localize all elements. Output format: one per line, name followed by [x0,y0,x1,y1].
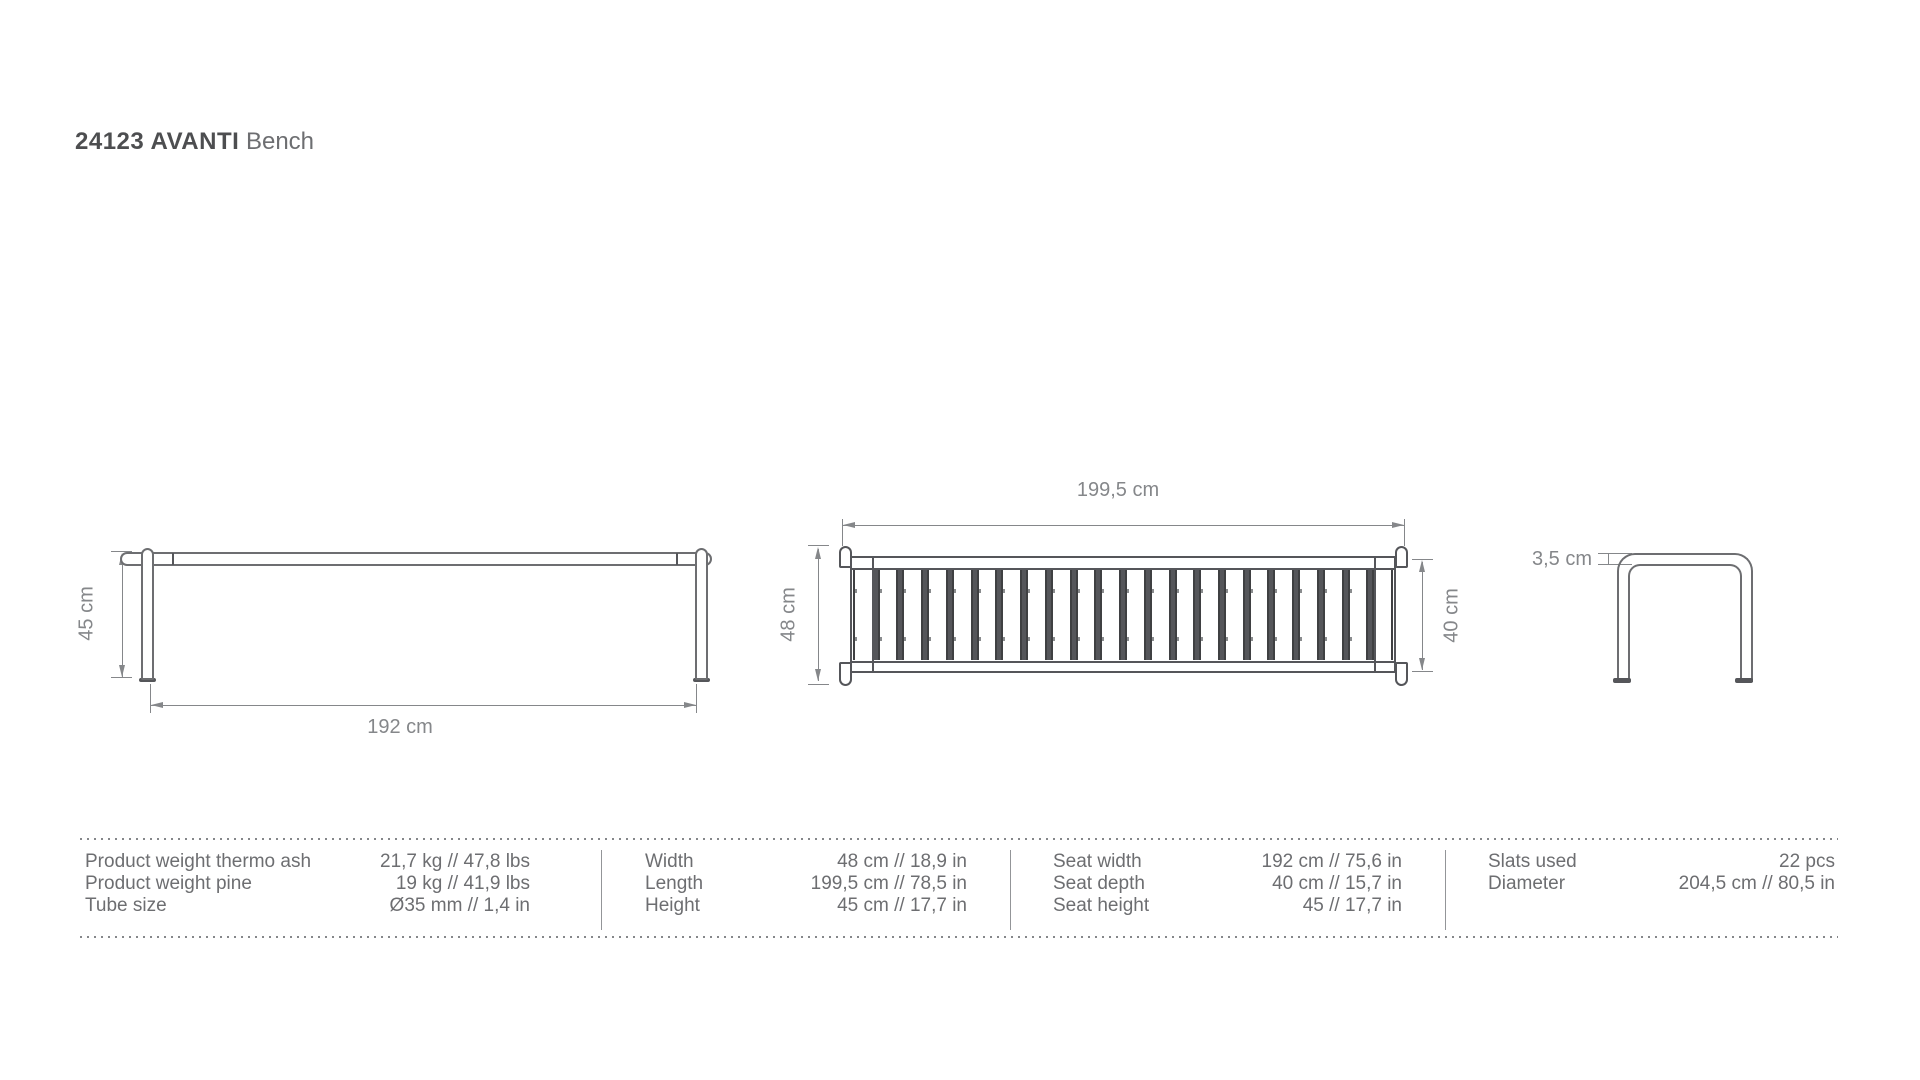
depth-dim-tick-bottom [808,684,829,685]
slat [1273,570,1294,660]
table-group-dimensions: Width 48 cm // 18,9 in Length 199,5 cm /… [645,851,967,917]
table-row: Length 199,5 cm // 78,5 in [645,873,967,895]
slat [1323,570,1344,660]
arrow-right-icon [684,702,696,708]
spec-value: 204,5 cm // 80,5 in [1679,873,1835,895]
height-dim-label: 45 cm [76,559,99,669]
page-title: 24123 AVANTI Bench [75,128,314,156]
slat [1026,570,1047,660]
spec-value: 45 // 17,7 in [1303,895,1402,917]
top-joint-left [872,557,874,672]
spec-label: Tube size [85,895,167,917]
spec-label: Height [645,895,700,917]
slat [1199,570,1220,660]
table-row: Seat depth 40 cm // 15,7 in [1053,873,1402,895]
arrow-down-icon [815,669,821,681]
spec-label: Product weight thermo ash [85,851,311,873]
slat [1051,570,1072,660]
slat-area [853,570,1393,660]
end-frame-inner [1628,564,1742,682]
arrow-left-icon [151,702,163,708]
spec-label: Seat height [1053,895,1149,917]
height-dim-line [122,555,123,677]
length-dim-line [843,525,1404,526]
slat [1150,570,1171,660]
end-foot-left [1613,678,1631,683]
top-joint-right [1374,557,1376,672]
arrow-down-icon [119,665,125,677]
side-seat-tube [120,552,712,566]
spec-value: 199,5 cm // 78,5 in [811,873,967,895]
spec-value: 40 cm // 15,7 in [1272,873,1402,895]
tube-dim-connector [1608,553,1609,565]
spec-value: 19 kg // 41,9 lbs [396,873,530,895]
end-foot-right [1735,678,1753,683]
spec-value: 21,7 kg // 47,8 lbs [380,851,530,873]
leg-end-top-right [1395,546,1408,568]
slat [853,570,874,660]
width-dim-ext-right [696,684,697,713]
side-joint-right [676,553,678,565]
slat [1224,570,1245,660]
product-code: 24123 AVANTI [75,128,239,155]
leg-end-bottom-right [1395,662,1408,686]
table-row: Product weight thermo ash 21,7 kg // 47,… [85,851,530,873]
slat [1125,570,1146,660]
seat-depth-dim-label: 40 cm [1441,561,1464,671]
tube-dim-label: 3,5 cm [1462,548,1592,571]
slat [1249,570,1270,660]
table-group-seat: Seat width 192 cm // 75,6 in Seat depth … [1053,851,1402,917]
table-row: Seat height 45 // 17,7 in [1053,895,1402,917]
length-dim-label: 199,5 cm [1018,479,1218,502]
slat [1100,570,1121,660]
length-dim-ext-right [1404,519,1405,546]
spec-label: Slats used [1488,851,1577,873]
width-dim-label: 192 cm [300,716,500,739]
slat [1348,570,1369,660]
table-row: Seat width 192 cm // 75,6 in [1053,851,1402,873]
spec-label: Diameter [1488,873,1565,895]
spec-sheet: 24123 AVANTI Bench 45 cm 192 cm 199,5 cm [0,0,1920,1080]
spec-label: Seat width [1053,851,1142,873]
width-dim-ext-left [150,684,151,713]
arrow-left-icon [843,522,855,528]
slat [902,570,923,660]
width-dim-line [151,705,696,706]
spec-value: 22 pcs [1779,851,1835,873]
spec-value: 192 cm // 75,6 in [1262,851,1402,873]
table-group-weights: Product weight thermo ash 21,7 kg // 47,… [85,851,530,917]
slat [952,570,973,660]
depth-dim-line [818,549,819,681]
table-divider-2 [1010,850,1011,930]
table-row: Product weight pine 19 kg // 41,9 lbs [85,873,530,895]
table-border-top [80,838,1838,840]
arrow-up-icon [1419,560,1425,572]
slat [1298,570,1319,660]
depth-dim-tick-top [808,545,829,546]
table-group-misc: Slats used 22 pcs Diameter 204,5 cm // 8… [1488,851,1835,895]
side-leg-right [695,548,708,680]
table-row: Diameter 204,5 cm // 80,5 in [1488,873,1835,895]
spec-label: Product weight pine [85,873,252,895]
slat [1076,570,1097,660]
spec-label: Width [645,851,694,873]
table-row: Tube size Ø35 mm // 1,4 in [85,895,530,917]
side-joint-left [172,553,174,565]
table-divider-3 [1445,850,1446,930]
slat [977,570,998,660]
arrow-up-icon [815,547,821,559]
table-row: Height 45 cm // 17,7 in [645,895,967,917]
depth-dim-label: 48 cm [778,560,801,670]
height-dim-tick-bottom [111,677,132,678]
side-leg-left [141,548,154,680]
table-border-bottom [80,936,1838,938]
arrow-down-icon [1419,658,1425,670]
slat [927,570,948,660]
spec-value: 45 cm // 17,7 in [837,895,967,917]
product-type: Bench [246,128,314,155]
table-row: Slats used 22 pcs [1488,851,1835,873]
arrow-right-icon [1392,522,1404,528]
seat-depth-tick-top [1412,559,1433,560]
spec-label: Length [645,873,703,895]
frame-tube-bottom-line [850,661,1396,663]
spec-value: Ø35 mm // 1,4 in [390,895,530,917]
table-row: Width 48 cm // 18,9 in [645,851,967,873]
slat [878,570,899,660]
seat-depth-tick-bottom [1412,671,1433,672]
spec-label: Seat depth [1053,873,1145,895]
slat [1001,570,1022,660]
slat [1175,570,1196,660]
spec-value: 48 cm // 18,9 in [837,851,967,873]
table-divider-1 [601,850,602,930]
seat-depth-dim-line [1422,562,1423,670]
